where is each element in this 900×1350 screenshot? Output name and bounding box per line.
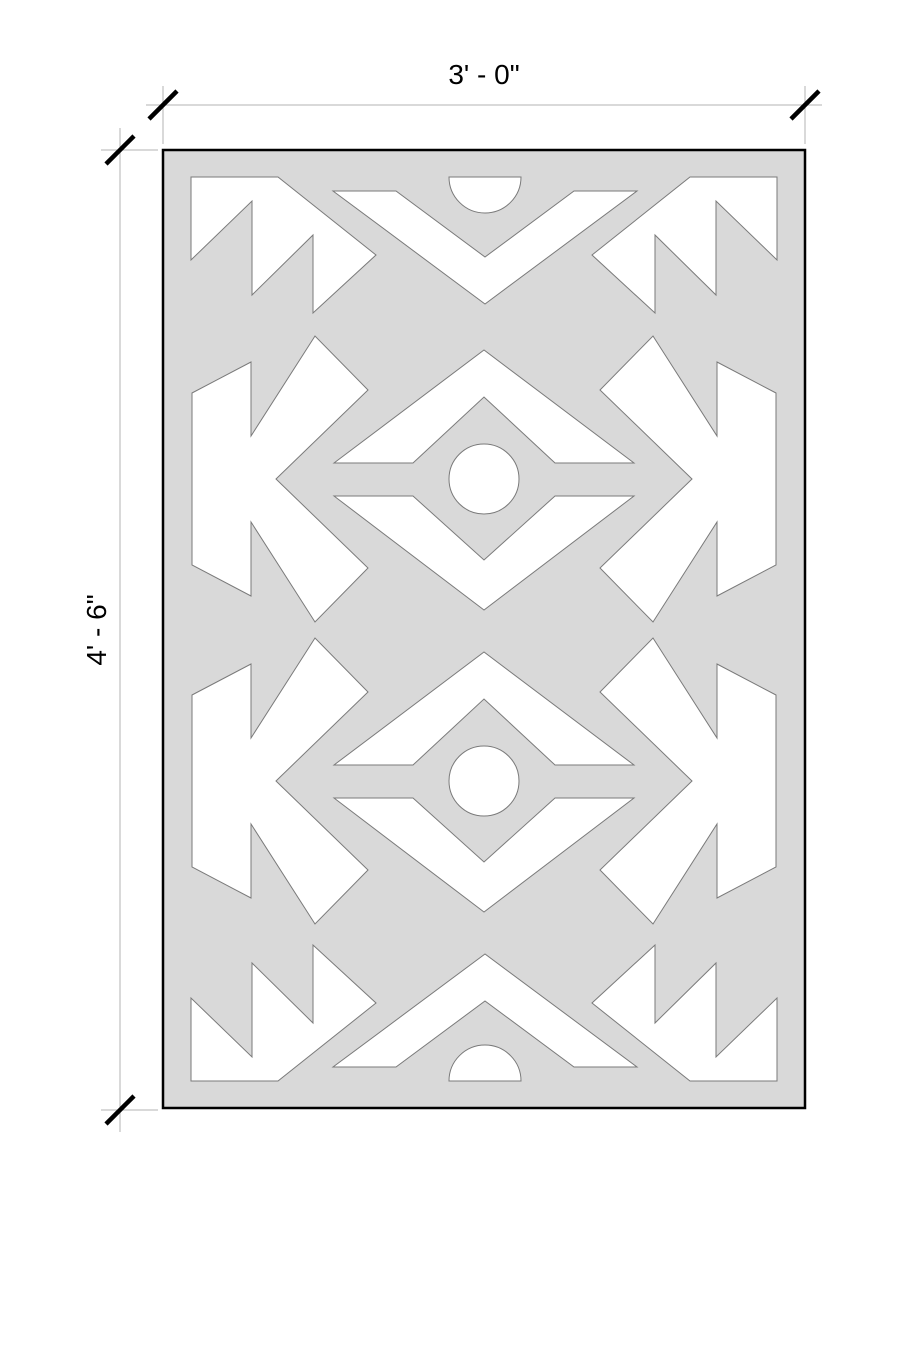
height-dimension: 4' - 6" (81, 128, 158, 1132)
height-dimension-label: 4' - 6" (81, 594, 112, 665)
rug-panel (163, 150, 805, 1108)
width-dimension: 3' - 0" (146, 59, 822, 144)
drawing-canvas: 3' - 0" 4' - 6" (0, 0, 900, 1350)
width-dimension-label: 3' - 0" (448, 59, 519, 90)
panel-drawing: 3' - 0" 4' - 6" (0, 0, 900, 1350)
